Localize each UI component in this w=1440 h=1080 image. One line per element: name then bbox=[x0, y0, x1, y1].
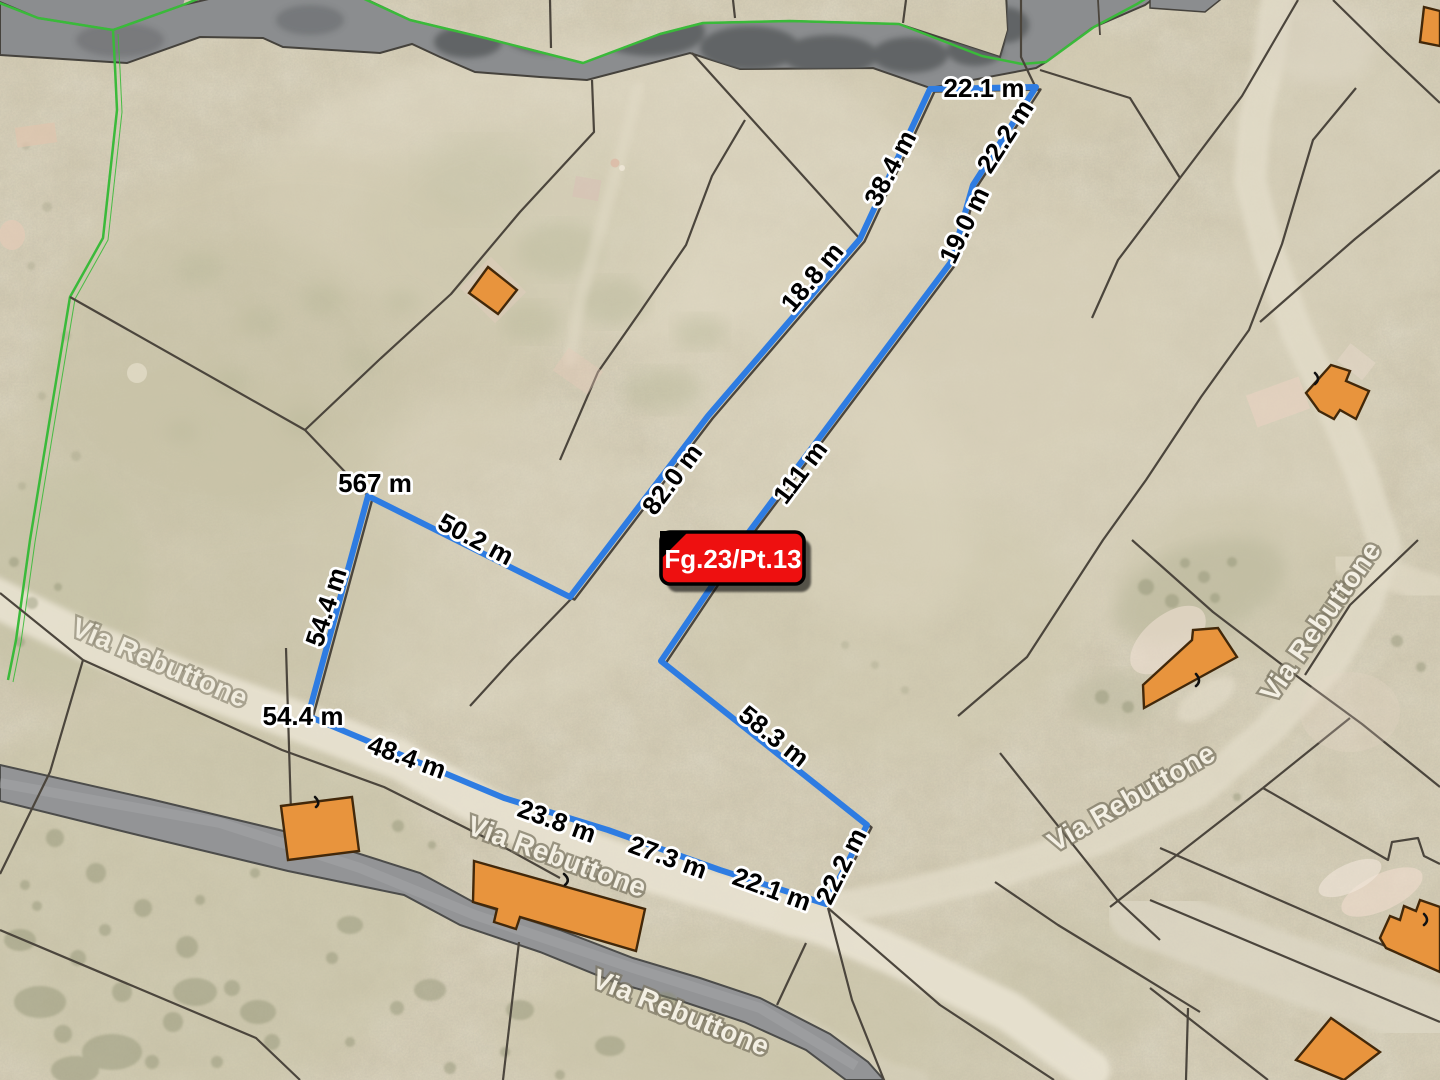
svg-text:Fg.23/Pt.13: Fg.23/Pt.13 bbox=[664, 544, 801, 574]
svg-text:567 m: 567 m bbox=[338, 468, 412, 498]
svg-text:54.4 m: 54.4 m bbox=[263, 701, 344, 731]
